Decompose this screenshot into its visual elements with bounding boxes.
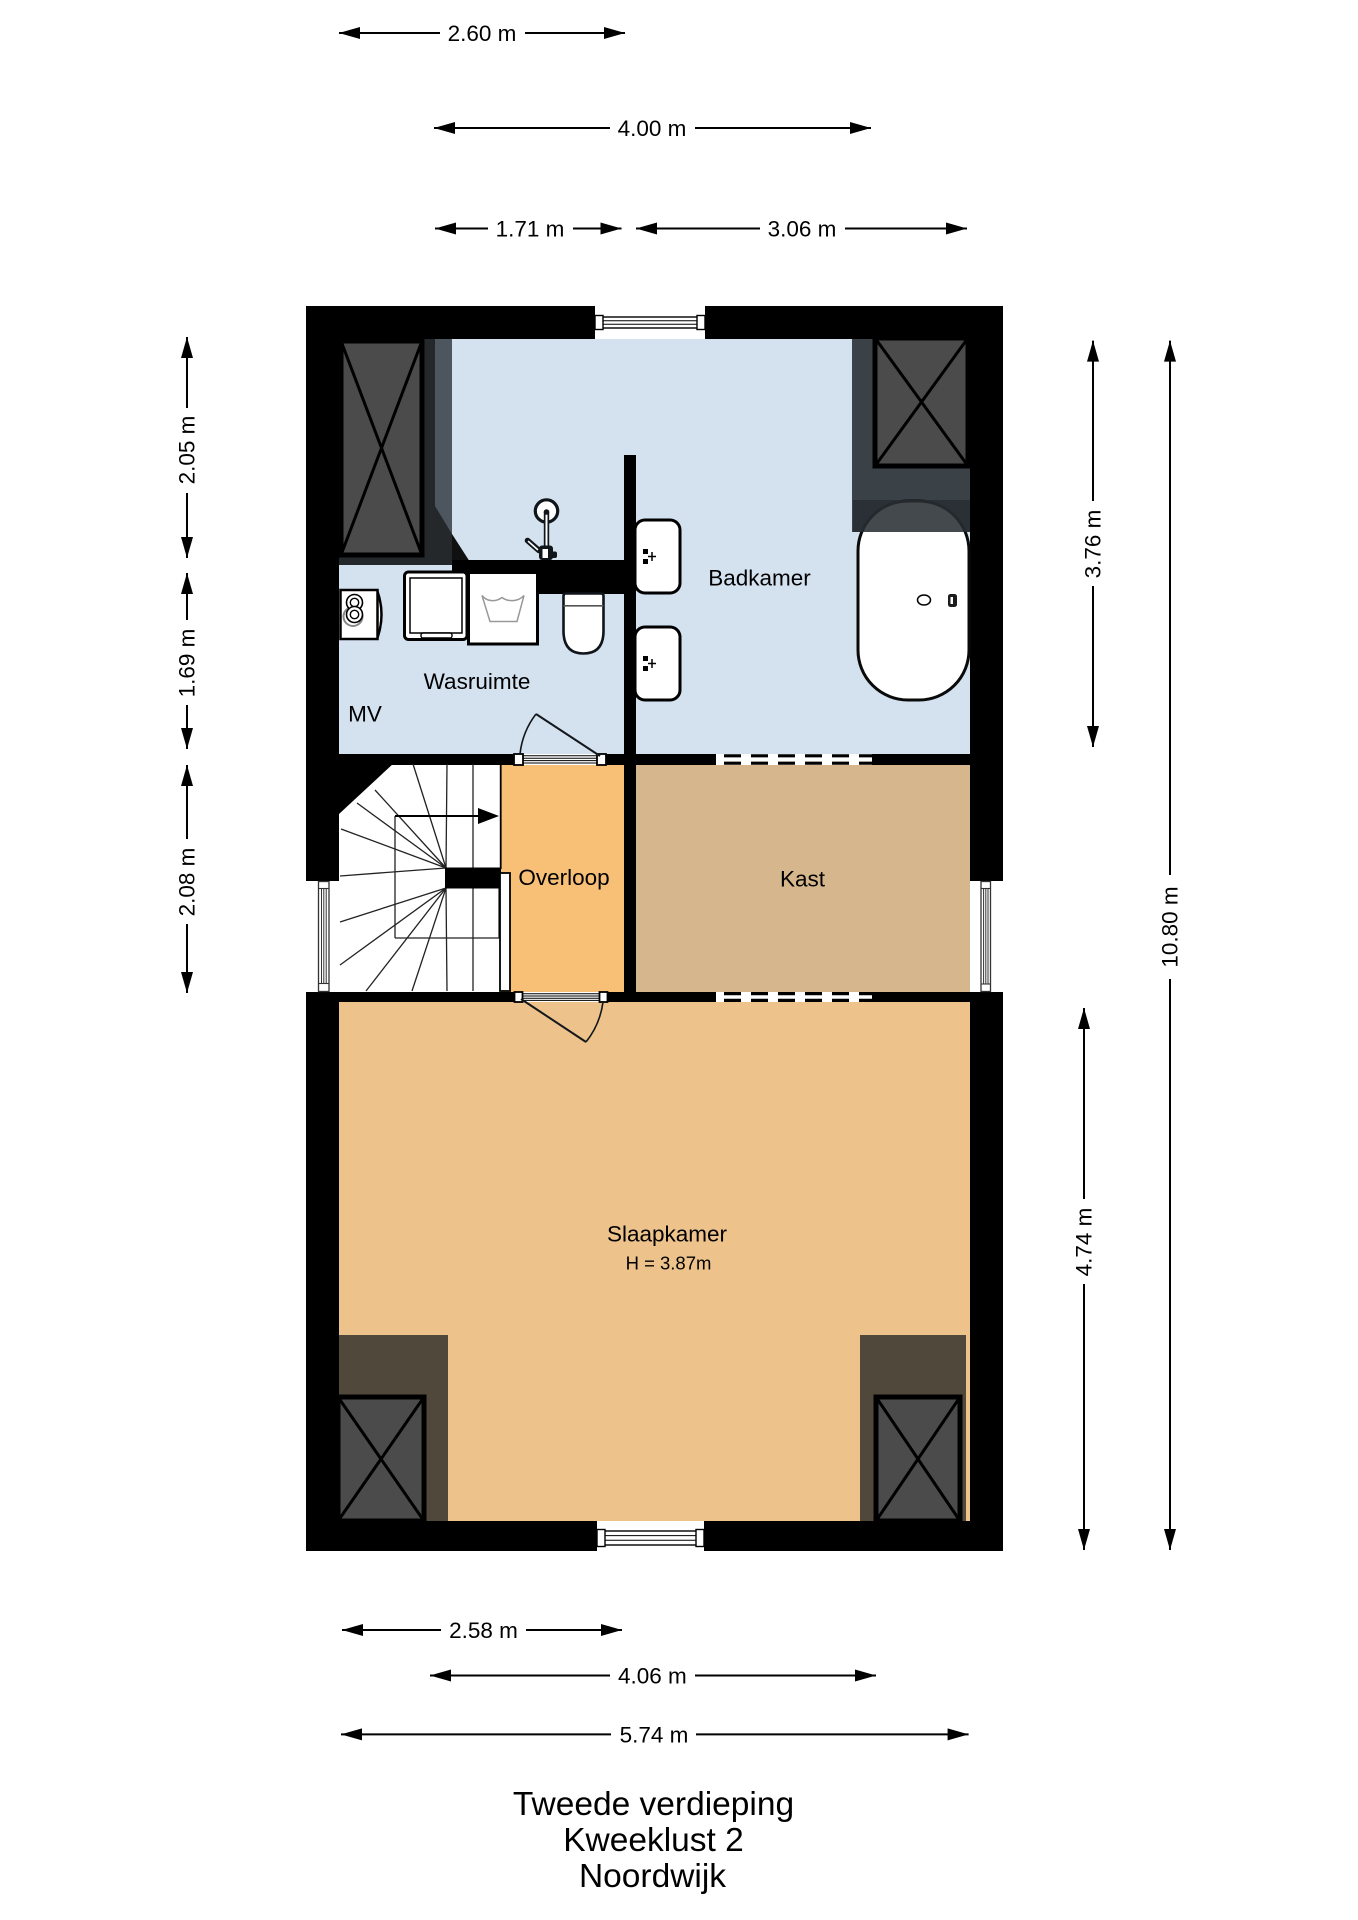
svg-text:Slaapkamer: Slaapkamer xyxy=(607,1222,728,1247)
svg-text:3.76 m: 3.76 m xyxy=(1081,510,1106,579)
svg-text:H = 3.87m: H = 3.87m xyxy=(626,1253,712,1274)
svg-text:Wasruimte: Wasruimte xyxy=(424,669,531,694)
svg-text:4.00 m: 4.00 m xyxy=(618,116,687,141)
svg-text:4.74 m: 4.74 m xyxy=(1072,1208,1097,1277)
svg-text:5.74 m: 5.74 m xyxy=(620,1722,689,1747)
svg-text:1.69 m: 1.69 m xyxy=(175,629,200,698)
svg-text:MV: MV xyxy=(348,702,382,727)
svg-text:Badkamer: Badkamer xyxy=(708,566,811,591)
svg-text:Overloop: Overloop xyxy=(518,865,609,890)
svg-text:Noordwijk: Noordwijk xyxy=(579,1858,726,1895)
svg-text:2.60 m: 2.60 m xyxy=(448,21,517,46)
svg-text:Tweede verdieping: Tweede verdieping xyxy=(513,1786,794,1823)
svg-text:3.06 m: 3.06 m xyxy=(768,217,837,242)
svg-text:10.80 m: 10.80 m xyxy=(1158,886,1183,967)
svg-text:4.06 m: 4.06 m xyxy=(618,1664,687,1689)
svg-text:Kast: Kast xyxy=(780,867,826,892)
svg-text:Kweeklust 2: Kweeklust 2 xyxy=(563,1822,744,1859)
svg-text:2.58 m: 2.58 m xyxy=(449,1618,518,1643)
svg-text:1.71 m: 1.71 m xyxy=(496,217,565,242)
svg-text:2.05 m: 2.05 m xyxy=(175,416,200,485)
svg-text:2.08 m: 2.08 m xyxy=(175,848,200,917)
